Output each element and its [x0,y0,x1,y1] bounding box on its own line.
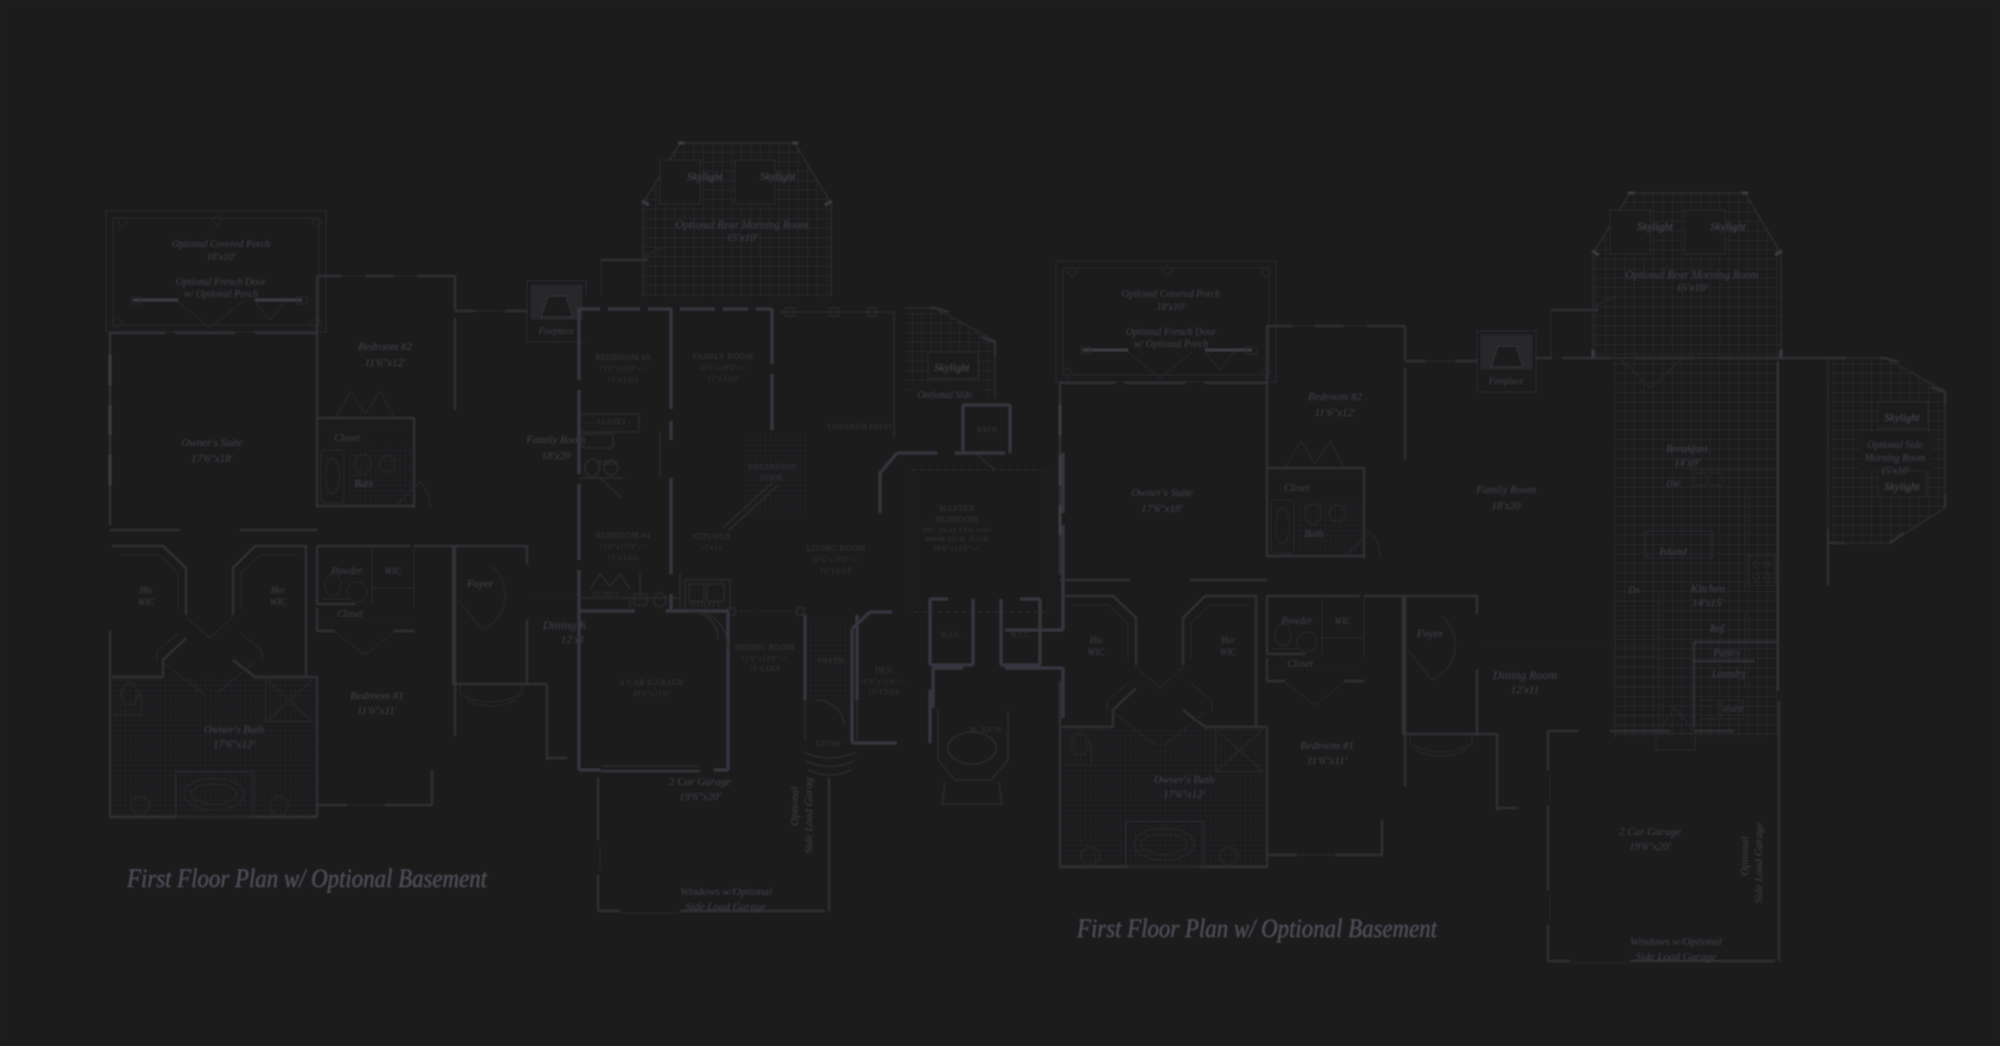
svg-text:W.I.C.: W.I.C. [940,631,961,639]
svg-text:BREAKFAST: BREAKFAST [748,462,796,471]
svg-text:11'x13': 11'x13' [700,544,723,552]
svg-text:11' CLGS: 11' CLGS [607,376,639,384]
svg-text:BEDROOM #4: BEDROOM #4 [595,531,650,540]
svg-text:21'6"x15'6"+/-: 21'6"x15'6"+/- [812,556,860,564]
svg-text:KITCHEN: KITCHEN [693,532,732,541]
svg-text:BATH: BATH [598,459,618,467]
svg-text:FOYER: FOYER [817,656,844,665]
svg-text:11' CLGS: 11' CLGS [868,688,900,696]
svg-text:CLOSET: CLOSET [597,418,627,426]
svg-text:BEDROOM: BEDROOM [935,515,979,524]
svg-text:BEDROOM #3: BEDROOM #3 [595,353,650,362]
svg-text:11'6"x13'0"+/-: 11'6"x13'0"+/- [599,365,647,373]
svg-text:LIVING ROOM: LIVING ROOM [806,544,865,553]
svg-text:11' CLGS: 11' CLGS [749,665,781,673]
svg-text:17' CLGS: 17' CLGS [707,375,739,383]
svg-text:OPT TRAY CLG AND: OPT TRAY CLG AND [923,527,992,534]
svg-text:DINING ROOM: DINING ROOM [735,643,795,652]
svg-text:DOOR TO M. BATH: DOOR TO M. BATH [925,536,989,543]
svg-text:CLOSET: CLOSET [593,592,619,598]
svg-text:12'0"x13'6"+/-: 12'0"x13'6"+/- [741,655,789,663]
svg-text:20'0"x21'0": 20'0"x21'0" [633,690,671,698]
svg-text:11'6"x11'6"+/-: 11'6"x11'6"+/- [860,678,908,686]
svg-text:11' CLGS: 11' CLGS [607,554,639,562]
svg-text:2 CAR GARAGE: 2 CAR GARAGE [620,678,684,687]
svg-text:ENTRY: ENTRY [816,740,841,748]
svg-text:16'0"x15'0"+/-: 16'0"x15'0"+/- [933,545,981,553]
svg-text:BATH: BATH [977,426,997,434]
svg-text:11'0"x13'0"+/-: 11'0"x13'0"+/- [599,543,647,551]
svg-text:W.I.C.: W.I.C. [1010,631,1031,639]
svg-text:MASTER: MASTER [939,504,975,513]
svg-text:UTILITY: UTILITY [690,601,721,609]
svg-text:NOOK: NOOK [760,473,784,482]
svg-text:M. BATH: M. BATH [970,726,1002,734]
svg-text:COVERED PATIO: COVERED PATIO [828,422,892,431]
svg-text:16'0"x18'6"+/-: 16'0"x18'6"+/- [699,364,747,372]
svg-text:DEN: DEN [875,666,893,675]
svg-text:12' CLGS: 12' CLGS [820,567,852,575]
svg-text:FAMILY ROOM: FAMILY ROOM [693,352,753,361]
